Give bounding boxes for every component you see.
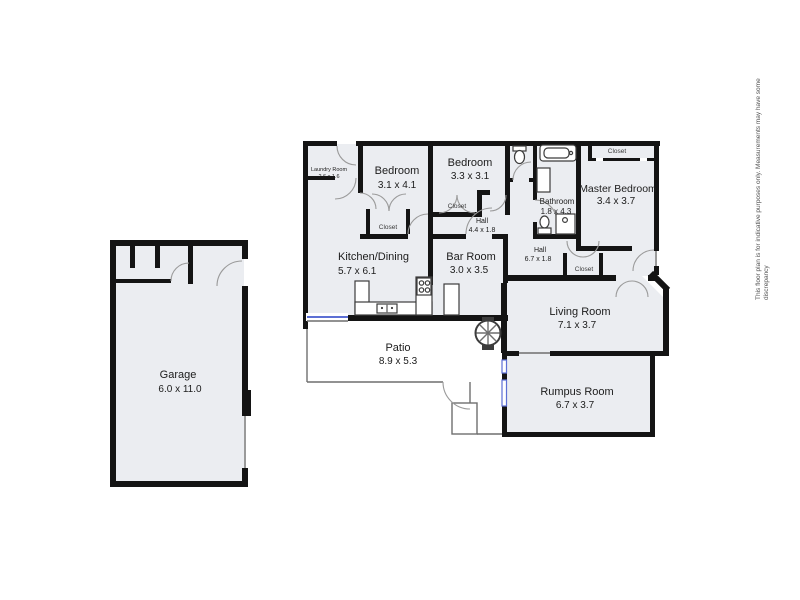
stove xyxy=(417,278,431,295)
bedroom1-closet-label: Closet xyxy=(379,224,398,231)
garage-dims: 6.0 x 11.0 xyxy=(158,384,202,395)
shower xyxy=(556,214,575,234)
living-closet-label: Closet xyxy=(575,266,594,273)
kitchen-dims: 5.7 x 6.1 xyxy=(338,266,377,277)
rumpus-window-2 xyxy=(502,380,507,406)
patio-step xyxy=(452,403,477,434)
bathroom-dims: 1.8 x 4.3 xyxy=(541,207,572,216)
living-name: Living Room xyxy=(549,306,610,318)
hall1-name: Hall xyxy=(476,218,489,225)
rumpus-name: Rumpus Room xyxy=(540,386,613,398)
bedroom2-closet-label: Closet xyxy=(448,203,467,210)
disclaimer-line-2: discrepancy xyxy=(763,265,770,300)
garage-name: Garage xyxy=(160,369,197,381)
bathtub xyxy=(540,145,576,161)
bedroom1-name: Bedroom xyxy=(375,165,420,177)
master-dims: 3.4 x 3.7 xyxy=(597,196,636,207)
kitchen-sink xyxy=(377,304,397,313)
laundry-name: Laundry Room xyxy=(311,167,347,173)
hall1-dims: 4.4 x 1.8 xyxy=(469,227,496,234)
hall2-dims: 6.7 x 1.8 xyxy=(525,256,552,263)
master-name: Master Bedroom xyxy=(579,183,657,195)
laundry-dims: 2.6 x 1.6 xyxy=(318,174,339,180)
master-closet-label: Closet xyxy=(608,148,627,155)
patio-dims: 8.9 x 5.3 xyxy=(379,356,418,367)
bathroom-name: Bathroom xyxy=(540,197,575,206)
disclaimer-text: This floor plan is for indicative purpos… xyxy=(755,76,770,300)
living-dims: 7.1 x 3.7 xyxy=(558,320,597,331)
floor-plan-drawing: Laundry Room 2.6 x 1.6 Bedroom 3.1 x 4.1… xyxy=(0,0,800,600)
floor-plan-page: Laundry Room 2.6 x 1.6 Bedroom 3.1 x 4.1… xyxy=(0,0,800,600)
hall2-name: Hall xyxy=(534,247,547,254)
bar-dims: 3.0 x 3.5 xyxy=(450,265,489,276)
patio-table xyxy=(476,317,501,350)
disclaimer-line-1: This floor plan is for indicative purpos… xyxy=(755,78,762,300)
bathroom-sink xyxy=(537,168,550,192)
bar-name: Bar Room xyxy=(446,251,496,263)
patio-name: Patio xyxy=(385,342,410,354)
rumpus-dims: 6.7 x 3.7 xyxy=(556,400,595,411)
rumpus-window-1 xyxy=(502,360,507,373)
bedroom2-dims: 3.3 x 3.1 xyxy=(451,171,490,182)
wc-toilet xyxy=(513,146,526,164)
bedroom1-dims: 3.1 x 4.1 xyxy=(378,180,417,191)
bedroom2-name: Bedroom xyxy=(448,157,493,169)
bar-counter xyxy=(444,284,459,315)
kitchen-name: Kitchen/Dining xyxy=(338,251,409,263)
